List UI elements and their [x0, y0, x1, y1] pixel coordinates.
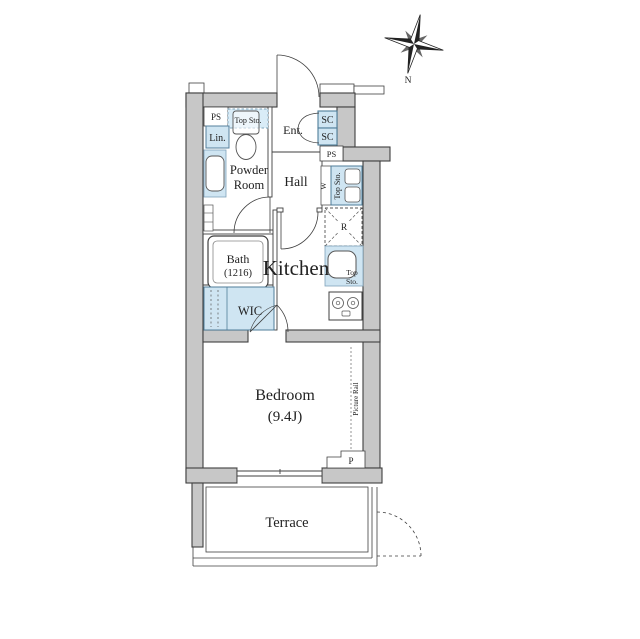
bath-counter: [204, 205, 213, 231]
linen-label: Lin.: [209, 133, 225, 144]
sc-upper-label: SC: [321, 115, 334, 126]
bath-label-1: Bath: [227, 252, 250, 266]
floor-plan-svg: N PS Top Sto. Lin. SC SC PS Ent. Hall Po…: [0, 0, 640, 639]
pipe-space-label: P: [348, 456, 353, 466]
ps-right-label: PS: [327, 149, 337, 159]
pipe-space-alcove: [327, 451, 365, 468]
vanity-sink: [206, 156, 224, 191]
sink-storage-label-2: Sto.: [346, 277, 358, 286]
powder-room-door: [234, 197, 270, 233]
kitchen-door: [281, 212, 318, 249]
entrance-door: [277, 55, 319, 97]
bedroom-label-1: Bedroom: [255, 387, 315, 404]
neighbor-structures: [189, 83, 384, 94]
floor-plan-page: N PS Top Sto. Lin. SC SC PS Ent. Hall Po…: [0, 0, 640, 639]
bath-label-2: (1216): [224, 268, 252, 279]
hall-label: Hall: [284, 174, 307, 189]
toilet-bowl: [236, 135, 256, 160]
wic-label: WIC: [238, 304, 262, 318]
fridge-label: R: [341, 223, 348, 233]
sc-lower-label: SC: [321, 132, 334, 143]
powder-room-label-2: Room: [234, 178, 265, 192]
kitchen-label: Kitchen: [263, 256, 330, 280]
compass-n-label: N: [405, 76, 412, 86]
entrance-label: Ent.: [283, 123, 303, 137]
terrace-partition-arc: [377, 512, 421, 556]
powder-room-label-1: Powder: [230, 163, 269, 177]
toilet-storage-label: Top Sto.: [235, 116, 262, 125]
compass-north-icon: [378, 8, 449, 79]
ps-left-label: PS: [211, 112, 221, 122]
terrace-label: Terrace: [265, 515, 308, 531]
bedroom-label-2: (9.4J): [268, 409, 303, 425]
washer-storage-label: Top Sto.: [333, 173, 342, 200]
washer-label: W: [319, 182, 328, 190]
terrace-window-gap: [237, 468, 322, 483]
sink-storage-label-1: Top: [346, 268, 358, 277]
picture-rail-label: Picture Rail: [352, 382, 360, 415]
